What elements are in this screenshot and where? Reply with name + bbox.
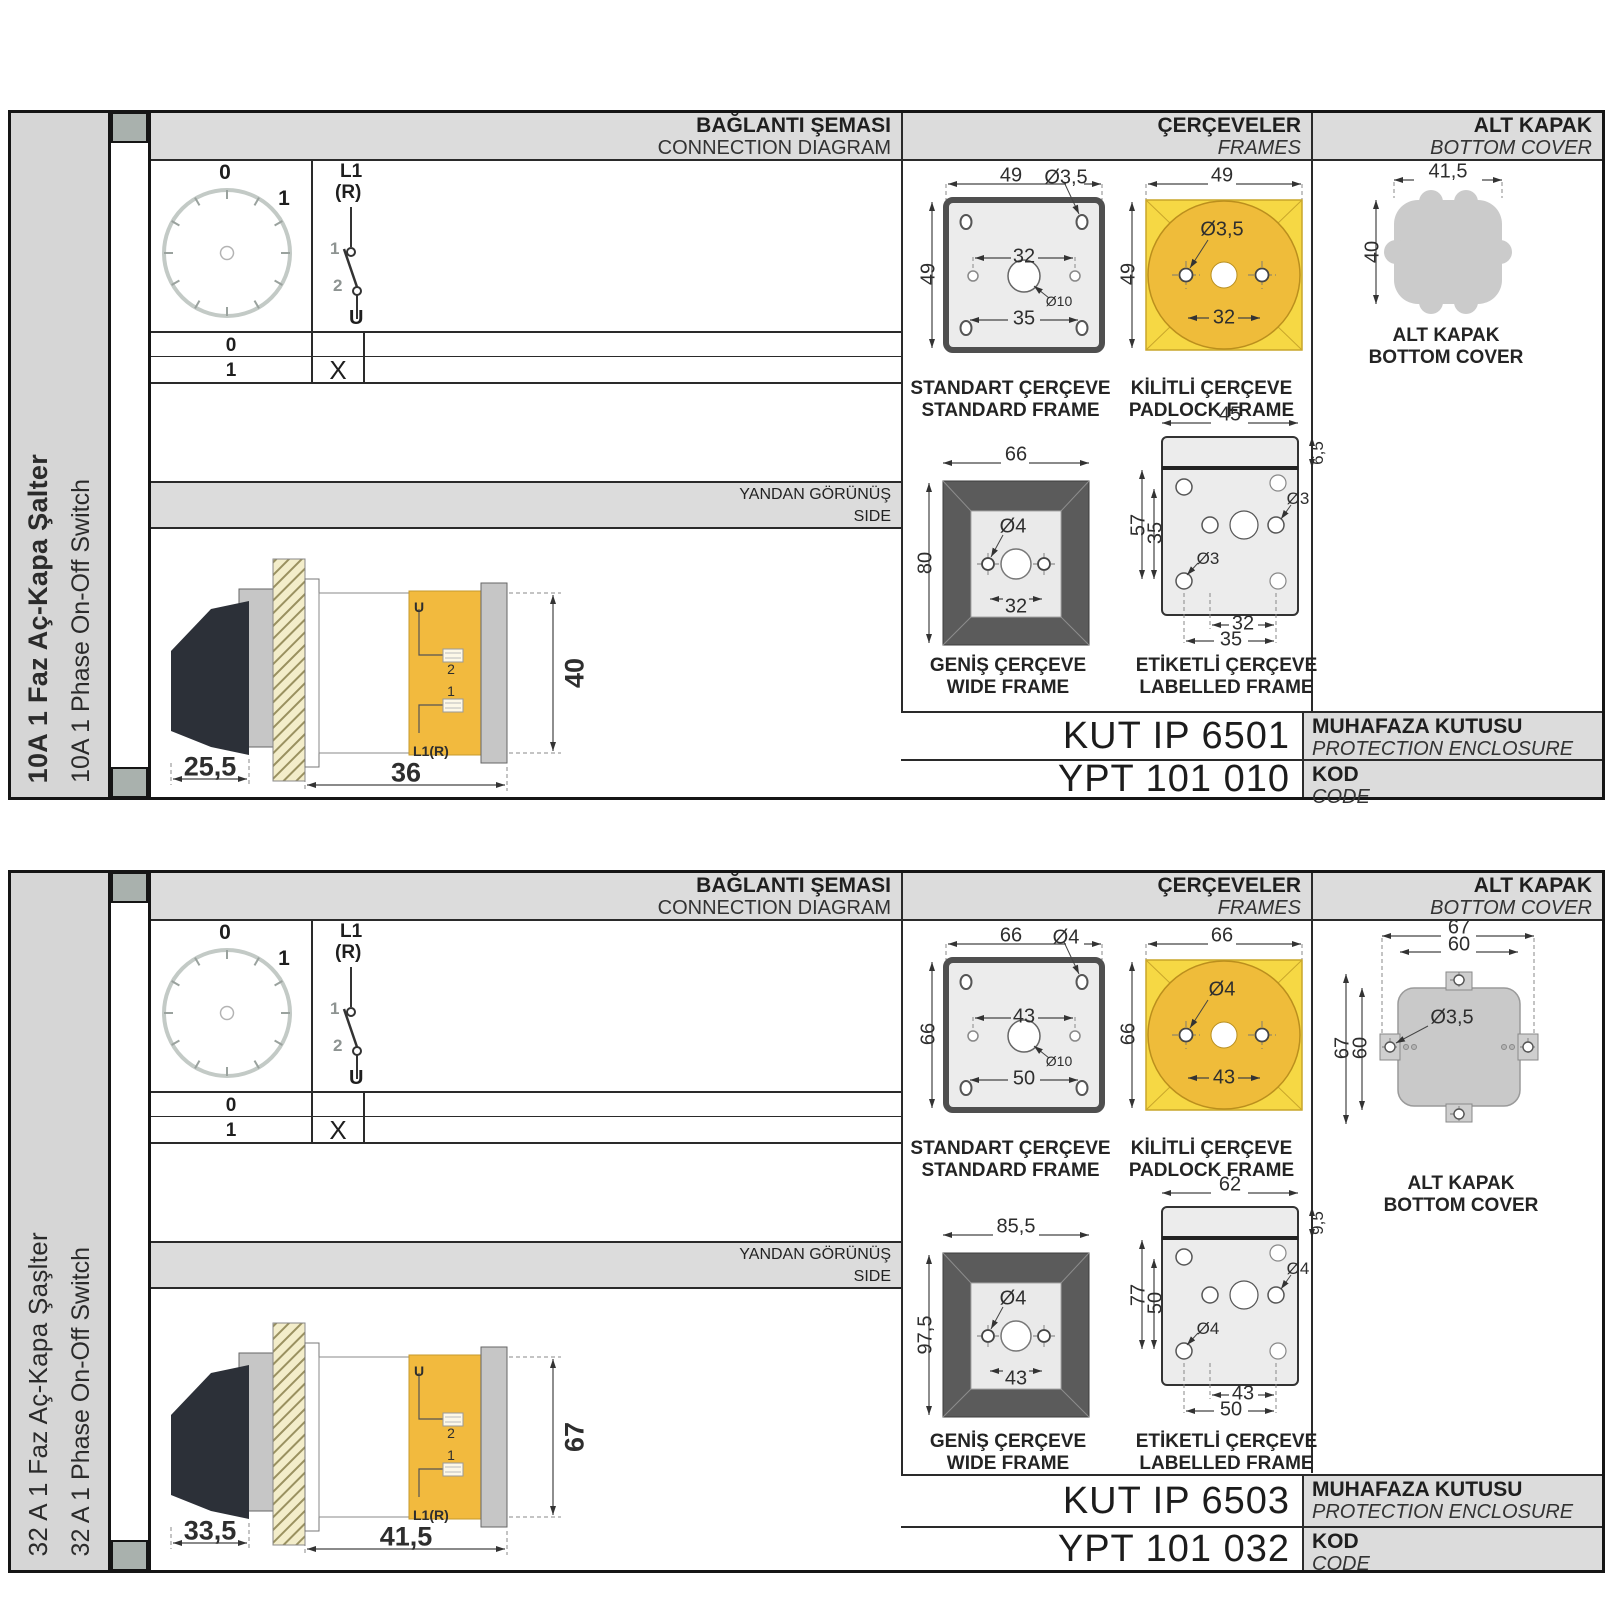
label-tr: ALT KAPAK bbox=[1346, 1173, 1576, 1195]
dial-pos-0: 0 bbox=[219, 921, 231, 945]
header-tr: YANDAN GÖRÜNÜŞ bbox=[151, 484, 891, 506]
binding-strip bbox=[111, 873, 151, 1570]
side-view-drawing: U 2 1 L1(R) 40 25,5 36 bbox=[161, 533, 721, 795]
switch-r-label: (R) bbox=[335, 942, 361, 964]
standard-frame-label: STANDART ÇERÇEVE STANDARD FRAME bbox=[903, 1138, 1118, 1182]
label-en: PROTECTION ENCLOSURE bbox=[1312, 1501, 1594, 1524]
standard-frame-svg bbox=[916, 168, 1106, 373]
enclosure-code-row: KUT IP 6503 MUHAFAZA KUTUSU PROTECTION E… bbox=[901, 1474, 1602, 1526]
section-content: BAĞLANTI ŞEMASI CONNECTION DIAGRAM ÇERÇE… bbox=[151, 873, 1602, 1570]
label-tr: STANDART ÇERÇEVE bbox=[903, 1138, 1118, 1160]
dim-hole-left: Ø3 bbox=[1197, 549, 1220, 569]
table-row-0: 0 bbox=[151, 331, 901, 356]
label-en: CODE bbox=[1312, 1553, 1594, 1576]
dim-left: 66 bbox=[1118, 1023, 1141, 1045]
side-view-drawing: U 2 1 L1(R) 67 33,5 41,5 bbox=[161, 1297, 721, 1559]
label-tr: GENİŞ ÇERÇEVE bbox=[903, 1431, 1113, 1453]
dim-handle: 25,5 bbox=[184, 752, 237, 783]
header-en: SIDE bbox=[151, 506, 891, 528]
switch-symbol-cell: L1 (R) 1 2 U bbox=[313, 921, 453, 1091]
dial-cell: 0 1 bbox=[151, 161, 313, 331]
switch-contact2-label: 2 bbox=[333, 1036, 342, 1056]
table-row-1: 1 X bbox=[151, 356, 901, 384]
contact-cell bbox=[313, 333, 365, 356]
dim-inner: 43 bbox=[1013, 1006, 1035, 1029]
term-2-label: 2 bbox=[447, 1425, 455, 1441]
dim-hole: Ø4 bbox=[1000, 1288, 1027, 1311]
dim-handle: 33,5 bbox=[184, 1516, 237, 1547]
switch-r-label: (R) bbox=[335, 182, 361, 204]
header-tr: BAĞLANTI ŞEMASI bbox=[151, 875, 891, 897]
dim-top: 49 bbox=[1000, 165, 1022, 188]
dial-pos-0: 0 bbox=[219, 161, 231, 185]
label-en: PROTECTION ENCLOSURE bbox=[1312, 738, 1594, 761]
side-view-header: YANDAN GÖRÜNÜŞ SIDE bbox=[151, 1241, 901, 1289]
label-en: BOTTOM COVER bbox=[1351, 347, 1541, 369]
dim-top: 41,5 bbox=[1429, 161, 1468, 184]
sidebar: 32 A 1 Faz Aç-Kapa Şaşlter 32 A 1 Phase … bbox=[11, 873, 111, 1570]
dim-height: 40 bbox=[560, 658, 591, 688]
standard-frame-drawing: 49 Ø3,5 49 32 Ø10 35 bbox=[916, 168, 1106, 373]
label-tr: KOD bbox=[1312, 763, 1594, 786]
dim-inner: 32 bbox=[1005, 596, 1027, 619]
padlock-frame-label: KİLİTLİ ÇERÇEVE PADLOCK FRAME bbox=[1109, 378, 1314, 422]
dim-top: 85,5 bbox=[997, 1216, 1036, 1239]
term-u-label: U bbox=[414, 1363, 424, 1379]
header-en: CONNECTION DIAGRAM bbox=[151, 137, 891, 159]
table-row-0: 0 bbox=[151, 1091, 901, 1116]
dim-top: 49 bbox=[1211, 165, 1233, 188]
labelled-frame-label: ETİKETLİ ÇERÇEVE LABELLED FRAME bbox=[1119, 1431, 1334, 1475]
bottom-cover-header: ALT KAPAK BOTTOM COVER bbox=[1311, 873, 1602, 921]
term-u-label: U bbox=[414, 599, 424, 615]
wide-frame-drawing: 66 80 Ø4 32 bbox=[921, 453, 1101, 653]
code-label: KOD CODE bbox=[1302, 1528, 1602, 1570]
dim-bottom: 35 bbox=[1013, 308, 1035, 331]
dim-body: 36 bbox=[391, 758, 421, 789]
standard-frame-label: STANDART ÇERÇEVE STANDARD FRAME bbox=[903, 378, 1118, 422]
frames-header: ÇERÇEVELER FRAMES bbox=[901, 873, 1311, 921]
label-tr: ETİKETLİ ÇERÇEVE bbox=[1119, 655, 1334, 677]
section-content: BAĞLANTI ŞEMASI CONNECTION DIAGRAM ÇERÇE… bbox=[151, 113, 1602, 797]
label-en: PADLOCK FRAME bbox=[1109, 400, 1314, 422]
dim-bottom-b: 50 bbox=[1220, 1399, 1242, 1422]
dim-band: 6,5 bbox=[1308, 441, 1328, 465]
dim-left: 40 bbox=[1362, 241, 1385, 263]
dim-body: 41,5 bbox=[380, 1522, 433, 1553]
padlock-frame-svg bbox=[1116, 928, 1306, 1133]
enclosure-code: KUT IP 6501 bbox=[901, 713, 1302, 759]
dim-left: 49 bbox=[1118, 263, 1141, 285]
product-section-10a: 10A 1 Faz Aç-Kapa Şalter 10A 1 Phase On-… bbox=[8, 110, 1605, 800]
strip-tab-top bbox=[111, 112, 148, 143]
dim-bottom: 50 bbox=[1013, 1068, 1035, 1091]
product-code-row: YPT 101 032 KOD CODE bbox=[901, 1526, 1602, 1570]
product-section-32a: 32 A 1 Faz Aç-Kapa Şaşlter 32 A 1 Phase … bbox=[8, 870, 1605, 1573]
dim-top-inner: 60 bbox=[1448, 934, 1470, 957]
switch-symbol-cell: L1 (R) 1 2 U bbox=[313, 161, 453, 331]
product-title-tr: 10A 1 Faz Aç-Kapa Şalter bbox=[23, 454, 54, 783]
contact-closed-mark: X bbox=[329, 1115, 346, 1145]
label-tr: KİLİTLİ ÇERÇEVE bbox=[1109, 378, 1314, 400]
standard-frame-drawing: 66 Ø4 66 43 Ø10 50 bbox=[916, 928, 1106, 1133]
labelled-frame-drawing: 45 6,5 57 35 Ø3 Ø3 32 35 bbox=[1126, 413, 1326, 653]
contact-cell bbox=[313, 1093, 365, 1116]
dim-left-inner: 60 bbox=[1350, 1037, 1373, 1059]
label-en: LABELLED FRAME bbox=[1119, 1453, 1334, 1475]
switch-l1-label: L1 bbox=[340, 921, 362, 943]
product-title-en: 32 A 1 Phase On-Off Switch bbox=[67, 1247, 96, 1556]
term-1-label: 1 bbox=[447, 683, 455, 699]
dim-hole-right: Ø4 bbox=[1287, 1259, 1310, 1279]
wide-frame-drawing: 85,5 97,5 Ø4 43 bbox=[921, 1225, 1101, 1425]
dim-center-hole: Ø10 bbox=[1046, 1053, 1072, 1069]
header-tr: YANDAN GÖRÜNÜŞ bbox=[151, 1244, 891, 1266]
switch-contact1-label: 1 bbox=[330, 999, 339, 1019]
wide-frame-svg bbox=[921, 1225, 1101, 1425]
frames-header: ÇERÇEVELER FRAMES bbox=[901, 113, 1311, 161]
dim-hole-right: Ø3 bbox=[1287, 489, 1310, 509]
side-view-header: YANDAN GÖRÜNÜŞ SIDE bbox=[151, 481, 901, 529]
product-code: YPT 101 010 bbox=[901, 761, 1302, 797]
enclosure-label: MUHAFAZA KUTUSU PROTECTION ENCLOSURE bbox=[1302, 1476, 1602, 1526]
dim-top: 66 bbox=[1005, 444, 1027, 467]
strip-tab-bottom bbox=[111, 767, 148, 798]
header-en: BOTTOM COVER bbox=[1311, 137, 1592, 159]
bottom-cover-label: ALT KAPAK BOTTOM COVER bbox=[1351, 325, 1541, 369]
wide-frame-label: GENİŞ ÇERÇEVE WIDE FRAME bbox=[903, 655, 1113, 699]
strip-tab-top bbox=[111, 872, 148, 903]
wide-frame-label: GENİŞ ÇERÇEVE WIDE FRAME bbox=[903, 1431, 1113, 1475]
product-code-row: YPT 101 010 KOD CODE bbox=[901, 759, 1602, 797]
connection-diagram-header: BAĞLANTI ŞEMASI CONNECTION DIAGRAM bbox=[151, 873, 901, 921]
wide-frame-svg bbox=[921, 453, 1101, 653]
enclosure-code: KUT IP 6503 bbox=[901, 1476, 1302, 1526]
header-tr: ÇERÇEVELER bbox=[901, 875, 1301, 897]
label-en: STANDARD FRAME bbox=[903, 400, 1118, 422]
label-tr: ETİKETLİ ÇERÇEVE bbox=[1119, 1431, 1334, 1453]
contact-closed-mark: X bbox=[329, 355, 346, 385]
label-en: BOTTOM COVER bbox=[1346, 1195, 1576, 1217]
position-label: 1 bbox=[151, 357, 313, 382]
dial-pos-1: 1 bbox=[278, 187, 290, 211]
label-en: WIDE FRAME bbox=[903, 1453, 1113, 1475]
product-code: YPT 101 032 bbox=[901, 1528, 1302, 1570]
dim-hole: Ø3,5 bbox=[1044, 167, 1087, 190]
dim-inner: 32 bbox=[1213, 307, 1235, 330]
dim-height: 67 bbox=[560, 1422, 591, 1452]
dim-left: 66 bbox=[918, 1023, 941, 1045]
binding-strip bbox=[111, 113, 151, 797]
switch-contact2-label: 2 bbox=[333, 276, 342, 296]
label-tr: KOD bbox=[1312, 1530, 1594, 1553]
product-title-en: 10A 1 Phase On-Off Switch bbox=[67, 479, 96, 783]
table-row-1: 1 X bbox=[151, 1116, 901, 1144]
label-tr: GENİŞ ÇERÇEVE bbox=[903, 655, 1113, 677]
label-en: LABELLED FRAME bbox=[1119, 677, 1334, 699]
standard-frame-svg bbox=[916, 928, 1106, 1133]
dim-hole-left: Ø4 bbox=[1197, 1319, 1220, 1339]
label-tr: MUHAFAZA KUTUSU bbox=[1312, 1478, 1594, 1501]
label-tr: ALT KAPAK bbox=[1351, 325, 1541, 347]
dim-hole: Ø4 bbox=[1053, 927, 1080, 950]
switch-u-label: U bbox=[349, 307, 363, 330]
dim-left-inner: 50 bbox=[1145, 1292, 1168, 1314]
position-label: 0 bbox=[151, 333, 313, 356]
dim-left: 97,5 bbox=[915, 1316, 938, 1355]
dim-left: 49 bbox=[918, 263, 941, 285]
position-label: 0 bbox=[151, 1093, 313, 1116]
dim-top: 45 bbox=[1219, 404, 1241, 427]
dial-cell: 0 1 bbox=[151, 921, 313, 1091]
label-en: CODE bbox=[1312, 786, 1594, 809]
labelled-frame-drawing: 62 9,5 77 50 Ø4 Ø4 43 50 bbox=[1126, 1183, 1326, 1423]
dim-left: 80 bbox=[915, 552, 938, 574]
header-en: FRAMES bbox=[901, 897, 1301, 919]
padlock-frame-svg bbox=[1116, 168, 1306, 373]
dim-bottom-b: 35 bbox=[1220, 629, 1242, 652]
switch-contact1-label: 1 bbox=[330, 239, 339, 259]
dial-pos-1: 1 bbox=[278, 947, 290, 971]
enclosure-label: MUHAFAZA KUTUSU PROTECTION ENCLOSURE bbox=[1302, 713, 1602, 759]
header-en: SIDE bbox=[151, 1266, 891, 1288]
dim-hole: Ø3,5 bbox=[1430, 1007, 1473, 1030]
label-en: STANDARD FRAME bbox=[903, 1160, 1118, 1182]
connection-diagram-header: BAĞLANTI ŞEMASI CONNECTION DIAGRAM bbox=[151, 113, 901, 161]
dim-inner: 32 bbox=[1013, 246, 1035, 269]
label-tr: MUHAFAZA KUTUSU bbox=[1312, 715, 1594, 738]
strip-tab-bottom bbox=[111, 1540, 148, 1571]
dim-inner: 43 bbox=[1213, 1067, 1235, 1090]
dim-center-hole: Ø10 bbox=[1046, 293, 1072, 309]
dim-band: 9,5 bbox=[1308, 1211, 1328, 1235]
label-en: WIDE FRAME bbox=[903, 677, 1113, 699]
switch-l1-label: L1 bbox=[340, 161, 362, 183]
bottom-cover-header: ALT KAPAK BOTTOM COVER bbox=[1311, 113, 1602, 161]
header-en: CONNECTION DIAGRAM bbox=[151, 897, 891, 919]
term-2-label: 2 bbox=[447, 661, 455, 677]
header-en: FRAMES bbox=[901, 137, 1301, 159]
padlock-frame-label: KİLİTLİ ÇERÇEVE PADLOCK FRAME bbox=[1109, 1138, 1314, 1182]
label-en: PADLOCK FRAME bbox=[1109, 1160, 1314, 1182]
dim-inner: 43 bbox=[1005, 1368, 1027, 1391]
dim-hole: Ø3,5 bbox=[1200, 219, 1243, 242]
dim-top: 62 bbox=[1219, 1174, 1241, 1197]
code-label: KOD CODE bbox=[1302, 761, 1602, 797]
term-1-label: 1 bbox=[447, 1447, 455, 1463]
bottom-cover-label: ALT KAPAK BOTTOM COVER bbox=[1346, 1173, 1576, 1217]
header-tr: ALT KAPAK bbox=[1311, 115, 1592, 137]
dim-left-inner: 35 bbox=[1145, 522, 1168, 544]
bottom-cover-drawing: 41,5 40 bbox=[1356, 168, 1536, 318]
label-tr: STANDART ÇERÇEVE bbox=[903, 378, 1118, 400]
header-tr: ALT KAPAK bbox=[1311, 875, 1592, 897]
enclosure-code-row: KUT IP 6501 MUHAFAZA KUTUSU PROTECTION E… bbox=[901, 711, 1602, 759]
padlock-frame-drawing: 49 49 Ø3,5 32 bbox=[1116, 168, 1306, 373]
position-label: 1 bbox=[151, 1117, 313, 1142]
label-tr: KİLİTLİ ÇERÇEVE bbox=[1109, 1138, 1314, 1160]
dim-hole: Ø4 bbox=[1000, 516, 1027, 539]
dim-hole: Ø4 bbox=[1209, 979, 1236, 1002]
labelled-frame-label: ETİKETLİ ÇERÇEVE LABELLED FRAME bbox=[1119, 655, 1334, 699]
dim-top: 66 bbox=[1000, 925, 1022, 948]
product-title-tr: 32 A 1 Faz Aç-Kapa Şaşlter bbox=[23, 1232, 54, 1556]
sidebar: 10A 1 Faz Aç-Kapa Şalter 10A 1 Phase On-… bbox=[11, 113, 111, 797]
padlock-frame-drawing: 66 66 Ø4 43 bbox=[1116, 928, 1306, 1133]
header-tr: ÇERÇEVELER bbox=[901, 115, 1301, 137]
switch-u-label: U bbox=[349, 1067, 363, 1090]
bottom-cover-drawing: 67 60 67 60 Ø3,5 bbox=[1336, 928, 1576, 1163]
dim-top: 66 bbox=[1211, 925, 1233, 948]
header-tr: BAĞLANTI ŞEMASI bbox=[151, 115, 891, 137]
